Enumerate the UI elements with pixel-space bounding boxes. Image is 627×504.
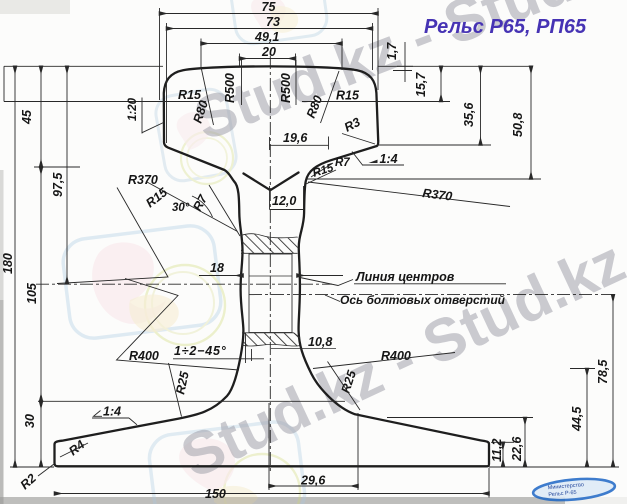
svg-text:1:4: 1:4 <box>103 405 121 419</box>
svg-text:1÷2−45°: 1÷2−45° <box>174 344 227 358</box>
svg-text:R500: R500 <box>223 73 237 103</box>
svg-text:105: 105 <box>25 282 39 304</box>
svg-text:180: 180 <box>1 253 15 274</box>
svg-text:49,1: 49,1 <box>254 30 279 44</box>
svg-text:Рельс Р65, РП65: Рельс Р65, РП65 <box>424 16 587 38</box>
svg-text:150: 150 <box>205 487 226 501</box>
svg-text:1:4: 1:4 <box>380 152 398 166</box>
svg-text:R500: R500 <box>279 73 293 103</box>
svg-text:Линия центров: Линия центров <box>355 270 455 284</box>
svg-text:97,5: 97,5 <box>51 172 65 197</box>
svg-text:30: 30 <box>23 414 37 428</box>
svg-text:19,6: 19,6 <box>283 131 308 145</box>
svg-text:Ось болтовых отверстий: Ось болтовых отверстий <box>340 293 506 307</box>
svg-text:R400: R400 <box>381 349 411 363</box>
svg-text:35,6: 35,6 <box>462 102 476 127</box>
svg-text:1,7: 1,7 <box>385 42 399 60</box>
svg-text:12,0: 12,0 <box>272 194 296 208</box>
svg-text:R7: R7 <box>335 157 350 169</box>
svg-text:75: 75 <box>262 0 277 14</box>
svg-text:R15: R15 <box>336 89 360 103</box>
svg-text:45: 45 <box>20 109 34 125</box>
svg-text:44,5: 44,5 <box>570 406 584 432</box>
svg-text:73: 73 <box>266 15 280 29</box>
svg-text:20: 20 <box>261 45 276 59</box>
svg-text:10,8: 10,8 <box>308 335 332 349</box>
svg-text:15,7: 15,7 <box>414 72 428 97</box>
svg-text:29,6: 29,6 <box>300 474 326 488</box>
svg-text:50,8: 50,8 <box>511 113 525 137</box>
svg-text:1:20: 1:20 <box>127 97 139 121</box>
svg-text:R370: R370 <box>128 173 158 187</box>
svg-text:18: 18 <box>210 261 224 275</box>
svg-text:30°: 30° <box>172 202 190 214</box>
svg-text:R400: R400 <box>129 349 159 363</box>
svg-text:22,6: 22,6 <box>510 436 524 462</box>
svg-text:78,5: 78,5 <box>596 359 610 384</box>
svg-text:11,2: 11,2 <box>490 439 504 462</box>
